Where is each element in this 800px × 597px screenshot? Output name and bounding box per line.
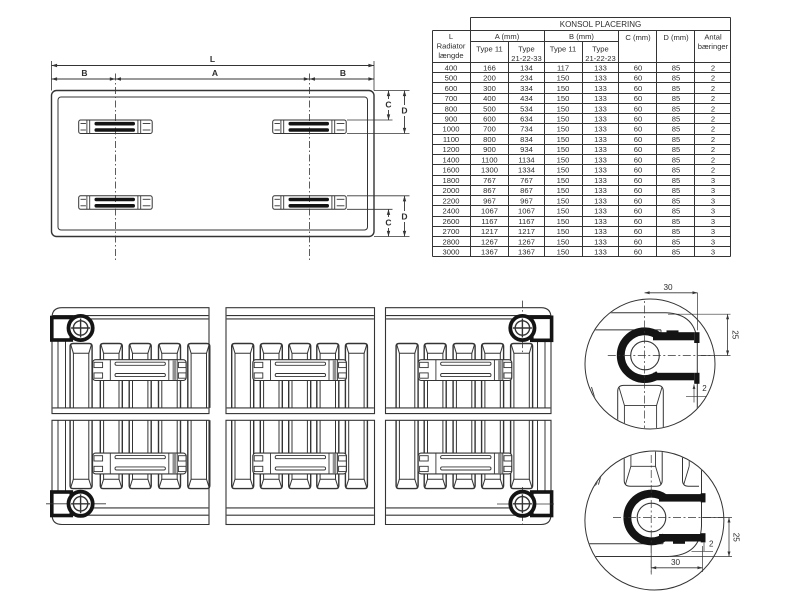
svg-text:85: 85 bbox=[672, 176, 680, 185]
svg-text:C: C bbox=[385, 100, 391, 110]
svg-text:2: 2 bbox=[711, 74, 715, 83]
svg-text:2800: 2800 bbox=[443, 237, 460, 246]
svg-text:700: 700 bbox=[445, 94, 458, 103]
svg-text:30: 30 bbox=[663, 283, 673, 292]
svg-text:Radiator: Radiator bbox=[437, 42, 466, 51]
svg-text:60: 60 bbox=[634, 155, 642, 164]
svg-text:133: 133 bbox=[594, 207, 607, 216]
svg-text:133: 133 bbox=[594, 104, 607, 113]
svg-text:85: 85 bbox=[672, 155, 680, 164]
svg-text:85: 85 bbox=[672, 84, 680, 93]
svg-text:800: 800 bbox=[445, 104, 458, 113]
svg-text:500: 500 bbox=[445, 74, 458, 83]
svg-text:2: 2 bbox=[711, 135, 715, 144]
svg-text:634: 634 bbox=[520, 115, 533, 124]
svg-text:60: 60 bbox=[634, 63, 642, 72]
svg-text:700: 700 bbox=[483, 125, 496, 134]
svg-text:150: 150 bbox=[557, 237, 570, 246]
svg-text:200: 200 bbox=[483, 74, 496, 83]
svg-text:150: 150 bbox=[557, 248, 570, 257]
svg-text:2: 2 bbox=[709, 540, 714, 549]
svg-text:85: 85 bbox=[672, 104, 680, 113]
svg-text:60: 60 bbox=[634, 186, 642, 195]
svg-text:85: 85 bbox=[672, 74, 680, 83]
svg-text:60: 60 bbox=[634, 74, 642, 83]
svg-text:150: 150 bbox=[557, 104, 570, 113]
svg-text:133: 133 bbox=[594, 94, 607, 103]
svg-text:60: 60 bbox=[634, 115, 642, 124]
svg-text:3: 3 bbox=[711, 248, 715, 257]
svg-text:1067: 1067 bbox=[518, 207, 535, 216]
svg-text:1167: 1167 bbox=[481, 217, 497, 226]
svg-text:1217: 1217 bbox=[481, 227, 498, 236]
svg-text:60: 60 bbox=[634, 166, 642, 175]
svg-text:300: 300 bbox=[483, 84, 496, 93]
svg-text:166: 166 bbox=[483, 63, 496, 72]
svg-text:133: 133 bbox=[594, 155, 607, 164]
svg-text:60: 60 bbox=[634, 104, 642, 113]
svg-text:60: 60 bbox=[634, 84, 642, 93]
svg-text:967: 967 bbox=[520, 196, 533, 205]
svg-text:2000: 2000 bbox=[443, 186, 460, 195]
svg-text:3000: 3000 bbox=[443, 248, 460, 257]
svg-text:KONSOL PLACERING: KONSOL PLACERING bbox=[560, 20, 642, 29]
svg-text:Type 11: Type 11 bbox=[550, 45, 576, 54]
svg-text:2700: 2700 bbox=[443, 227, 460, 236]
svg-text:C (mm): C (mm) bbox=[625, 33, 651, 42]
svg-text:133: 133 bbox=[594, 74, 607, 83]
svg-text:85: 85 bbox=[672, 63, 680, 72]
svg-text:1200: 1200 bbox=[443, 145, 460, 154]
svg-text:85: 85 bbox=[672, 145, 680, 154]
svg-text:25: 25 bbox=[731, 533, 740, 543]
svg-text:117: 117 bbox=[557, 63, 569, 72]
svg-text:1800: 1800 bbox=[443, 176, 460, 185]
svg-text:334: 334 bbox=[520, 84, 533, 93]
svg-text:60: 60 bbox=[634, 94, 642, 103]
svg-text:Type: Type bbox=[592, 45, 608, 54]
svg-text:1167: 1167 bbox=[518, 217, 534, 226]
svg-text:867: 867 bbox=[483, 186, 496, 195]
svg-text:600: 600 bbox=[483, 115, 496, 124]
svg-text:30: 30 bbox=[671, 558, 681, 567]
svg-text:2: 2 bbox=[711, 63, 715, 72]
svg-text:3: 3 bbox=[711, 217, 715, 226]
svg-text:150: 150 bbox=[557, 135, 570, 144]
svg-text:400: 400 bbox=[483, 94, 496, 103]
svg-text:767: 767 bbox=[520, 176, 533, 185]
svg-text:85: 85 bbox=[672, 166, 680, 175]
svg-text:133: 133 bbox=[594, 84, 607, 93]
svg-text:C: C bbox=[385, 218, 391, 228]
svg-text:150: 150 bbox=[557, 176, 570, 185]
svg-text:L: L bbox=[449, 32, 453, 41]
svg-text:133: 133 bbox=[594, 125, 607, 134]
svg-text:134: 134 bbox=[520, 63, 533, 72]
svg-text:2: 2 bbox=[711, 104, 715, 113]
svg-text:60: 60 bbox=[634, 135, 642, 144]
svg-text:D: D bbox=[401, 106, 407, 116]
svg-text:2: 2 bbox=[711, 155, 715, 164]
svg-text:Type: Type bbox=[518, 45, 534, 54]
svg-text:2: 2 bbox=[711, 84, 715, 93]
svg-text:3: 3 bbox=[711, 186, 715, 195]
svg-text:D (mm): D (mm) bbox=[663, 33, 689, 42]
svg-text:2400: 2400 bbox=[443, 207, 460, 216]
svg-text:434: 434 bbox=[520, 94, 533, 103]
svg-text:85: 85 bbox=[672, 237, 680, 246]
svg-text:867: 867 bbox=[520, 186, 533, 195]
svg-text:133: 133 bbox=[594, 63, 607, 72]
svg-text:B: B bbox=[81, 68, 87, 78]
svg-text:150: 150 bbox=[557, 166, 570, 175]
svg-text:60: 60 bbox=[634, 125, 642, 134]
svg-text:150: 150 bbox=[557, 217, 570, 226]
svg-text:150: 150 bbox=[557, 186, 570, 195]
svg-text:934: 934 bbox=[520, 145, 533, 154]
svg-text:85: 85 bbox=[672, 115, 680, 124]
svg-text:3: 3 bbox=[711, 176, 715, 185]
svg-text:2200: 2200 bbox=[443, 196, 460, 205]
svg-text:1100: 1100 bbox=[443, 135, 459, 144]
svg-text:2: 2 bbox=[711, 125, 715, 134]
svg-text:85: 85 bbox=[672, 186, 680, 195]
svg-text:133: 133 bbox=[594, 196, 607, 205]
svg-text:150: 150 bbox=[557, 155, 570, 164]
svg-text:150: 150 bbox=[557, 125, 570, 134]
svg-text:2: 2 bbox=[702, 384, 707, 393]
svg-text:Antal: Antal bbox=[704, 33, 722, 42]
svg-text:734: 734 bbox=[520, 125, 533, 134]
svg-text:150: 150 bbox=[557, 207, 570, 216]
svg-text:60: 60 bbox=[634, 196, 642, 205]
svg-text:60: 60 bbox=[634, 207, 642, 216]
svg-text:1600: 1600 bbox=[443, 166, 460, 175]
svg-text:150: 150 bbox=[557, 74, 570, 83]
svg-text:534: 534 bbox=[520, 104, 533, 113]
svg-text:60: 60 bbox=[634, 217, 642, 226]
svg-text:85: 85 bbox=[672, 135, 680, 144]
svg-text:133: 133 bbox=[594, 115, 607, 124]
svg-text:400: 400 bbox=[445, 63, 458, 72]
svg-text:1000: 1000 bbox=[443, 125, 460, 134]
svg-text:967: 967 bbox=[483, 196, 496, 205]
svg-text:85: 85 bbox=[672, 196, 680, 205]
svg-text:60: 60 bbox=[634, 248, 642, 257]
svg-text:800: 800 bbox=[483, 135, 496, 144]
svg-text:600: 600 bbox=[445, 84, 458, 93]
svg-text:60: 60 bbox=[634, 237, 642, 246]
svg-text:85: 85 bbox=[672, 94, 680, 103]
svg-text:60: 60 bbox=[634, 227, 642, 236]
svg-text:B (mm): B (mm) bbox=[569, 32, 594, 41]
svg-text:133: 133 bbox=[594, 166, 607, 175]
svg-text:25: 25 bbox=[730, 330, 739, 340]
svg-text:133: 133 bbox=[594, 186, 607, 195]
svg-text:1300: 1300 bbox=[481, 166, 498, 175]
svg-text:3: 3 bbox=[711, 196, 715, 205]
svg-text:150: 150 bbox=[557, 196, 570, 205]
svg-text:85: 85 bbox=[672, 125, 680, 134]
svg-text:21-22-33: 21-22-33 bbox=[511, 54, 541, 63]
svg-text:900: 900 bbox=[445, 115, 458, 124]
svg-text:133: 133 bbox=[594, 135, 607, 144]
svg-text:A (mm): A (mm) bbox=[495, 32, 520, 41]
svg-text:150: 150 bbox=[557, 227, 570, 236]
svg-text:150: 150 bbox=[557, 145, 570, 154]
svg-text:21-22-23: 21-22-23 bbox=[585, 54, 615, 63]
svg-text:85: 85 bbox=[672, 217, 680, 226]
svg-text:834: 834 bbox=[520, 135, 533, 144]
svg-text:længde: længde bbox=[438, 51, 463, 60]
svg-text:1400: 1400 bbox=[443, 155, 460, 164]
svg-text:150: 150 bbox=[557, 115, 570, 124]
svg-text:1067: 1067 bbox=[481, 207, 498, 216]
svg-text:234: 234 bbox=[520, 74, 533, 83]
svg-text:1134: 1134 bbox=[518, 155, 534, 164]
svg-text:900: 900 bbox=[483, 145, 496, 154]
svg-text:2: 2 bbox=[711, 94, 715, 103]
svg-text:133: 133 bbox=[594, 145, 607, 154]
svg-text:2: 2 bbox=[711, 115, 715, 124]
svg-text:60: 60 bbox=[634, 176, 642, 185]
svg-text:133: 133 bbox=[594, 176, 607, 185]
svg-text:500: 500 bbox=[483, 104, 496, 113]
svg-text:150: 150 bbox=[557, 94, 570, 103]
svg-text:150: 150 bbox=[557, 84, 570, 93]
svg-text:L: L bbox=[210, 54, 215, 64]
svg-text:1267: 1267 bbox=[518, 237, 535, 246]
svg-text:133: 133 bbox=[594, 237, 607, 246]
svg-text:85: 85 bbox=[672, 248, 680, 257]
svg-text:2: 2 bbox=[711, 166, 715, 175]
svg-text:1217: 1217 bbox=[518, 227, 535, 236]
svg-text:1100: 1100 bbox=[481, 155, 497, 164]
svg-text:D: D bbox=[401, 212, 407, 222]
svg-text:1367: 1367 bbox=[481, 248, 498, 257]
svg-text:A: A bbox=[212, 68, 218, 78]
svg-text:85: 85 bbox=[672, 227, 680, 236]
svg-text:133: 133 bbox=[594, 248, 607, 257]
svg-text:1367: 1367 bbox=[518, 248, 535, 257]
svg-text:133: 133 bbox=[594, 227, 607, 236]
svg-text:B: B bbox=[340, 68, 346, 78]
svg-text:60: 60 bbox=[634, 145, 642, 154]
svg-text:Type 11: Type 11 bbox=[476, 45, 502, 54]
svg-text:3: 3 bbox=[711, 237, 715, 246]
svg-text:133: 133 bbox=[594, 217, 607, 226]
svg-text:3: 3 bbox=[711, 227, 715, 236]
svg-text:2600: 2600 bbox=[443, 217, 460, 226]
svg-text:767: 767 bbox=[483, 176, 496, 185]
svg-text:bæringer: bæringer bbox=[698, 42, 729, 51]
svg-text:1267: 1267 bbox=[481, 237, 498, 246]
svg-text:1334: 1334 bbox=[518, 166, 535, 175]
svg-text:3: 3 bbox=[711, 207, 715, 216]
svg-text:85: 85 bbox=[672, 207, 680, 216]
svg-text:2: 2 bbox=[711, 145, 715, 154]
